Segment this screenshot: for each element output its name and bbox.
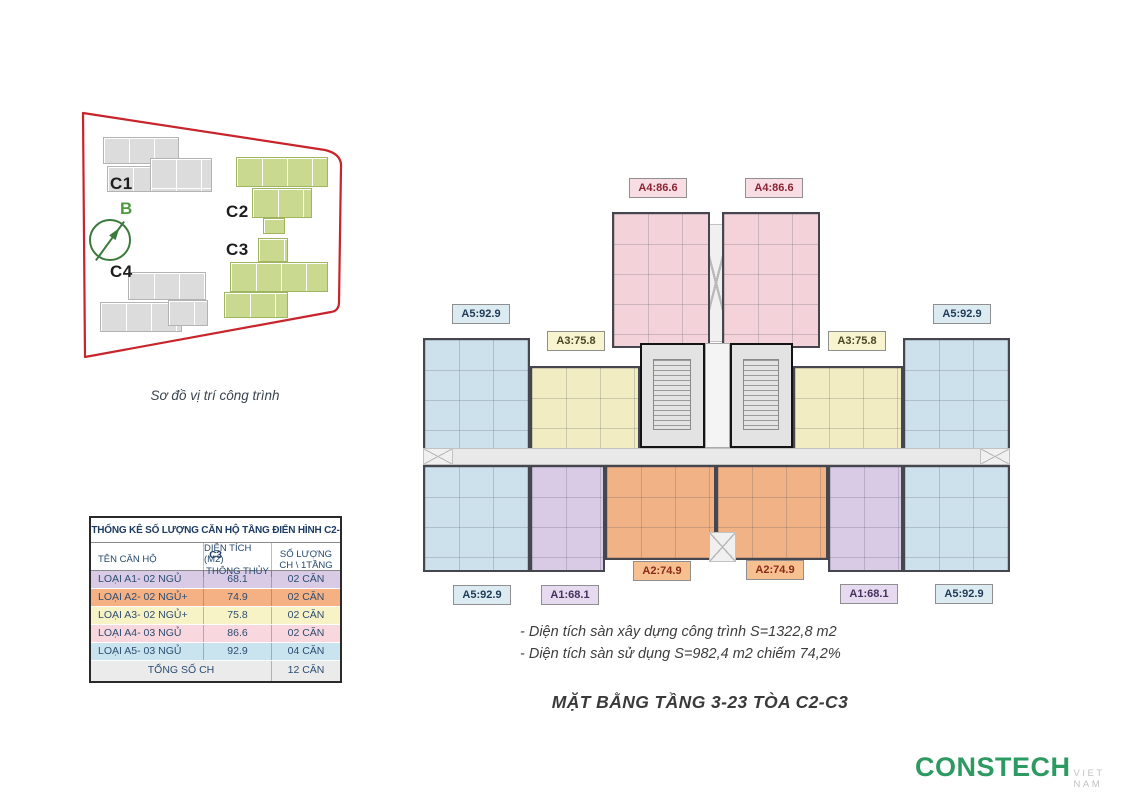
- unit-a3-left: [530, 366, 640, 455]
- floor-plan-sheet: C1 C2 C3 C4 B Sơ đồ vị trí công trình TH…: [0, 0, 1132, 800]
- unit-a5-lower-left: [423, 465, 530, 572]
- unit-a5-upper-left: [423, 338, 530, 455]
- building-c4-label: C4: [110, 262, 133, 282]
- stair-elevator-core-left: [640, 343, 705, 448]
- site-location-map: C1 C2 C3 C4 B Sơ đồ vị trí công trình: [60, 90, 390, 420]
- unit-label-a4-right: A4:86.6: [745, 178, 803, 198]
- table-row: LOẠI A1- 02 NGỦ 68.1 02 CĂN: [91, 571, 340, 589]
- sheet-title: MẶT BẰNG TẦNG 3-23 TÒA C2-C3: [460, 692, 940, 713]
- lower-connector: [709, 532, 736, 562]
- building-c2-label: C2: [226, 202, 249, 222]
- site-map-caption: Sơ đồ vị trí công trình: [100, 388, 330, 403]
- note-line: - Diện tích sàn sử dụng S=982,4 m2 chiếm…: [520, 643, 841, 665]
- corridor-end-right: [980, 448, 1010, 465]
- unit-label-a5-lower-right: A5:92.9: [935, 584, 993, 604]
- north-label: B: [120, 199, 133, 219]
- central-corridor: [423, 448, 1010, 465]
- unit-a3-right: [793, 366, 903, 455]
- unit-a1-right: [828, 465, 903, 572]
- building-c3-block: [224, 292, 288, 318]
- table-row: LOẠI A2- 02 NGỦ+ 74.9 02 CĂN: [91, 589, 340, 607]
- unit-label-a3-left: A3:75.8: [547, 331, 605, 351]
- table-total-row: TỔNG SỐ CH 12 CĂN: [91, 661, 340, 681]
- constech-logo: CONSTECH VIET NAM: [915, 752, 1132, 790]
- building-c2-block: [263, 218, 285, 234]
- building-c1-label: C1: [110, 174, 133, 194]
- unit-label-a5-upper-left: A5:92.9: [452, 304, 510, 324]
- unit-a4-right: [722, 212, 820, 348]
- stairs: [743, 359, 780, 430]
- unit-a2-left: [605, 465, 716, 560]
- unit-a5-upper-right: [903, 338, 1010, 455]
- table-header-row: TÊN CĂN HỘ DIỆN TÍCH (M2)THÔNG THỦY SỐ L…: [91, 543, 340, 571]
- unit-label-a2-right: A2:74.9: [746, 560, 804, 580]
- north-compass-icon: [89, 219, 131, 261]
- building-c2-block: [252, 188, 312, 218]
- note-line: - Diện tích sàn xây dựng công trình S=13…: [520, 621, 841, 643]
- building-c4-block: [128, 272, 206, 300]
- area-notes: - Diện tích sàn xây dựng công trình S=13…: [520, 621, 841, 665]
- typical-floor-plan: A4:86.6 A4:86.6 A5:92.9 A5:92.9 A3:75.8 …: [415, 160, 1031, 620]
- building-c1-block: [150, 158, 212, 192]
- logo-brand-text: CONSTECH: [915, 752, 1071, 783]
- table-row: LOẠI A3- 02 NGỦ+ 75.8 02 CĂN: [91, 607, 340, 625]
- core-lobby: [705, 343, 730, 448]
- building-c3-block: [258, 238, 288, 262]
- stair-elevator-core-right: [730, 343, 793, 448]
- unit-a4-left: [612, 212, 710, 348]
- corridor-end-left: [423, 448, 453, 465]
- table-row: LOẠI A5- 03 NGỦ 92.9 04 CĂN: [91, 643, 340, 661]
- table-title: THỐNG KÊ SỐ LƯỢNG CĂN HỘ TẦNG ĐIỂN HÌNH …: [91, 518, 340, 543]
- compass-needle: [95, 221, 125, 261]
- unit-label-a1-left: A1:68.1: [541, 585, 599, 605]
- unit-label-a1-right: A1:68.1: [840, 584, 898, 604]
- stairs: [653, 359, 691, 430]
- unit-a5-lower-right: [903, 465, 1010, 572]
- logo-suffix-text: VIET NAM: [1074, 768, 1132, 790]
- apartment-stats-table: THỐNG KÊ SỐ LƯỢNG CĂN HỘ TẦNG ĐIỂN HÌNH …: [89, 516, 342, 683]
- table-row: LOẠI A4- 03 NGỦ 86.6 02 CĂN: [91, 625, 340, 643]
- building-c4-block: [168, 300, 208, 326]
- unit-label-a3-right: A3:75.8: [828, 331, 886, 351]
- unit-a1-left: [530, 465, 605, 572]
- unit-label-a5-lower-left: A5:92.9: [453, 585, 511, 605]
- building-c3-label: C3: [226, 240, 249, 260]
- unit-label-a2-left: A2:74.9: [633, 561, 691, 581]
- building-c3-block: [230, 262, 328, 292]
- building-c2-block: [236, 157, 328, 187]
- unit-label-a5-upper-right: A5:92.9: [933, 304, 991, 324]
- unit-label-a4-left: A4:86.6: [629, 178, 687, 198]
